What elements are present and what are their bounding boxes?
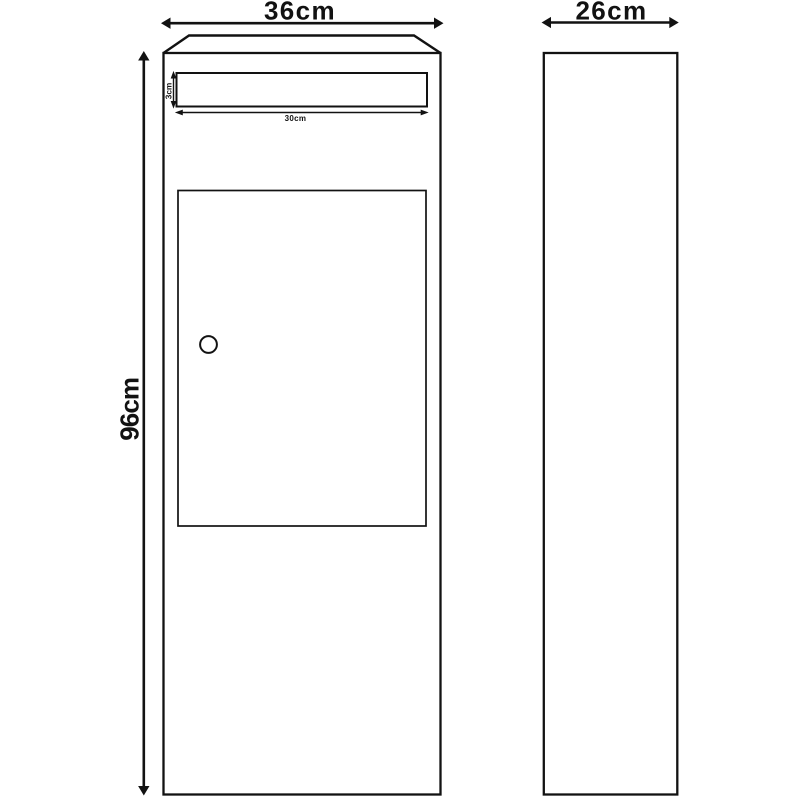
svg-text:3cm: 3cm <box>164 83 174 100</box>
svg-text:36cm: 36cm <box>264 0 336 26</box>
svg-text:96cm: 96cm <box>115 378 145 441</box>
svg-text:30cm: 30cm <box>285 114 307 123</box>
svg-text:26cm: 26cm <box>575 0 647 26</box>
